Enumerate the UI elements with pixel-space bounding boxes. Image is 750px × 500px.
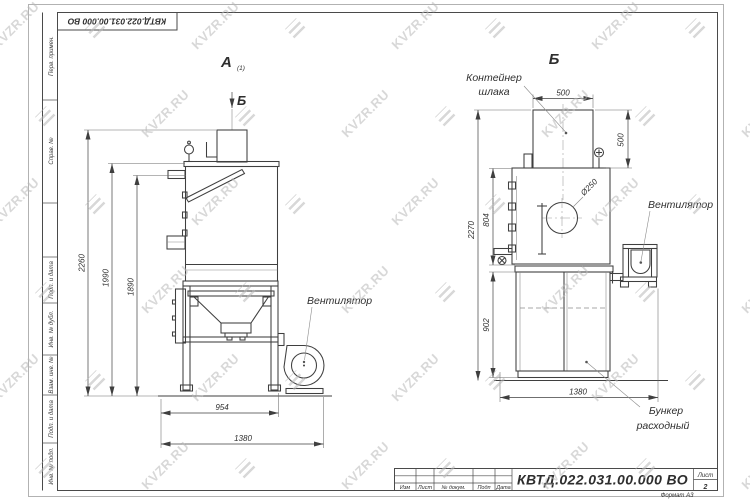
margin-label-sprav: Справ. № — [48, 137, 55, 165]
dim-bunker-height: 902 — [482, 318, 491, 332]
dim-total-height-b: 2270 — [467, 221, 476, 240]
th-list: Лист — [417, 485, 433, 491]
view-a-lid — [186, 170, 245, 203]
view-a-section-arrow-label: Б — [237, 93, 246, 108]
title-block: Изм Лист № докум. Подп Дата КВТД.022.031… — [395, 469, 718, 500]
bunker-cabinet — [516, 272, 610, 378]
th-podp: Подп — [477, 485, 490, 491]
margin-label-inv-podl: Инв. № подл. — [48, 447, 55, 484]
margin-label-perv: Перв. примен. — [49, 36, 55, 76]
view-a-hopper — [193, 296, 269, 340]
dim-container-width: 500 — [556, 89, 570, 98]
view-a-gauge — [185, 141, 194, 161]
margin-column: Перв. примен. Справ. № Подп. и дата Инв.… — [43, 13, 58, 491]
margin-label-podp1: Подп. и дата — [49, 261, 55, 299]
slag-container-label-1: Контейнер — [466, 72, 522, 84]
view-a-label: А — [220, 54, 232, 71]
view-b-gauge — [595, 148, 604, 168]
dim-inlet-diameter: Ø250 — [578, 177, 599, 198]
slag-container-callout: Контейнер шлака — [466, 72, 567, 134]
margin-label-vzam: Взам. инв. № — [48, 356, 55, 394]
margin-label-podp2: Подп. и дата — [49, 400, 55, 438]
slag-container-label-2: шлака — [478, 86, 509, 98]
view-b: Б — [466, 51, 713, 432]
bunker-label-1: Бункер — [649, 405, 683, 417]
view-b-label: Б — [549, 51, 560, 68]
view-a-label-index: (1) — [237, 65, 245, 72]
view-a-dimensions: 2260 1990 1890 954 1380 — [78, 130, 324, 448]
sheet-frame: Перв. примен. Справ. № Подп. и дата Инв.… — [29, 5, 724, 497]
view-a-fan-label: Вентилятор — [307, 295, 372, 307]
view-b-fan-label: Вентилятор — [648, 199, 713, 211]
dim-total-depth: 1380 — [569, 388, 587, 397]
top-stamp-number: КВТД.022.031.00.000 ВО — [67, 17, 166, 27]
sheet-number: 2 — [703, 484, 708, 491]
view-a: А (1) Б — [78, 54, 373, 448]
dim-total-width-a: 1380 — [234, 434, 252, 443]
sheet-cell-label: Лист — [697, 473, 713, 479]
view-b-fan — [610, 245, 657, 288]
dim-container-height: 500 — [617, 133, 626, 147]
drawing-sheet: KVZR.RUKVZR.RUKVZR.RUKVZR.RUKVZR.RUKVZR.… — [0, 0, 750, 500]
doc-number: КВТД.022.031.00.000 ВО — [517, 472, 688, 488]
view-a-machine — [158, 130, 332, 396]
view-b-machine — [494, 104, 668, 381]
margin-label-inv-dubl: Инв. № дубл. — [48, 311, 55, 348]
bunker-label-2: расходный — [636, 420, 690, 432]
view-b-fan-callout: Вентилятор — [640, 199, 714, 264]
view-b-dimensions: 500 500 2270 804 902 1380 — [467, 89, 658, 403]
format-label: Формат А3 — [661, 493, 694, 499]
drawing-canvas: Перв. примен. Справ. № Подп. и дата Инв.… — [0, 0, 750, 500]
drain-valve — [494, 249, 512, 265]
top-stamp: КВТД.022.031.00.000 ВО — [58, 13, 178, 31]
dim-total-height-a: 2260 — [78, 254, 87, 273]
dim-body-height-a: 1990 — [102, 269, 111, 287]
dim-frame-width-a: 954 — [215, 403, 229, 412]
th-data: Дата — [495, 485, 511, 491]
th-izm: Изм — [400, 485, 410, 491]
dim-lid-height-a: 1890 — [127, 278, 136, 296]
th-ndokum: № докум. — [441, 485, 465, 491]
dim-chamber-height: 804 — [482, 213, 491, 227]
view-a-fan — [278, 334, 324, 394]
